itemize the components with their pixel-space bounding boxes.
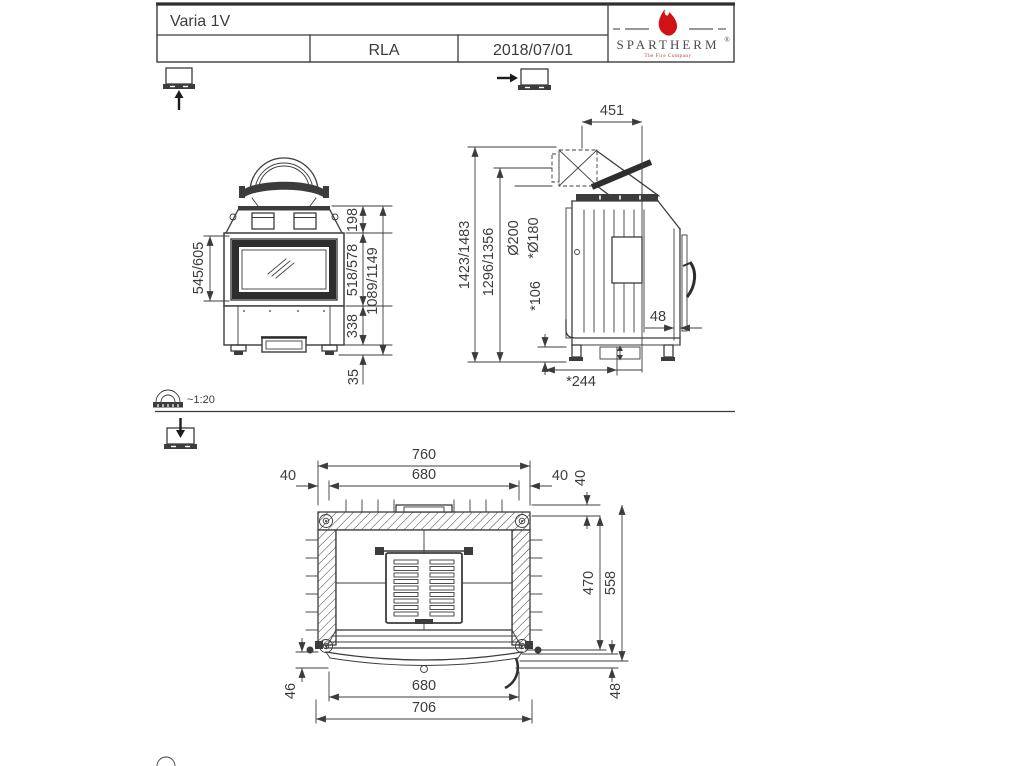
dim-front-overall-height: 1089/1149 <box>365 247 381 314</box>
bottom-partial-icon <box>157 757 175 766</box>
dim-top-front-offset-right: 48 <box>608 683 624 699</box>
insulation-wall-left <box>318 530 336 645</box>
dim-side-base-depth: *244 <box>566 374 596 390</box>
door-handle <box>687 262 695 297</box>
front-view-marker-icon <box>163 68 195 110</box>
dim-top-margin-right: 40 <box>552 468 568 484</box>
drawing-date: 2018/07/01 <box>493 42 573 59</box>
dim-side-flue-diameter: Ø200 <box>506 220 522 255</box>
side-view-marker-icon <box>497 69 551 90</box>
dim-top-margin-top: 40 <box>573 470 589 486</box>
dim-top-front-offset-left: 46 <box>283 683 299 699</box>
scale-note: ~1:20 <box>187 394 215 406</box>
dim-front-foot-height: 35 <box>346 369 362 385</box>
side-panel-plate <box>612 237 642 283</box>
model-name: Varia 1V <box>170 13 231 30</box>
insulation-wall-rear <box>318 512 530 530</box>
front-view: 545/605 198 518/578 338 35 1089/1149 <box>191 158 392 385</box>
door-handle-top-view <box>505 658 518 688</box>
dim-front-hood-height: 198 <box>345 208 361 232</box>
brand-name: SPARTHERM <box>616 37 719 52</box>
side-view: 451 1423/1483 1296/1356 Ø200 *Ø180 *106 … <box>457 103 702 390</box>
curved-door-front <box>326 652 522 660</box>
technical-drawing-sheet: Varia 1V RLA 2018/07/01 SPARTHERM ® The … <box>0 0 1024 766</box>
top-view: 760 680 40 40 40 470 558 46 <box>280 447 628 723</box>
door-glass-edge <box>682 235 687 331</box>
dim-side-overall-height: 1423/1483 <box>457 221 473 290</box>
top-view-marker-icon <box>164 418 197 449</box>
dim-top-opening-width: 680 <box>412 467 436 483</box>
dim-top-overall-width: 760 <box>412 447 436 463</box>
dim-top-body-depth: 470 <box>581 571 597 595</box>
brand-tagline: The Fire Company <box>644 53 691 59</box>
grate-grille <box>375 547 473 624</box>
flue-collar <box>243 182 325 198</box>
title-block: Varia 1V RLA 2018/07/01 SPARTHERM ® The … <box>156 4 735 62</box>
side-view-dimensions: 451 1423/1483 1296/1356 Ø200 *Ø180 *106 … <box>457 103 702 390</box>
insulation-wall-right <box>512 530 530 645</box>
hood-vent-right <box>294 213 316 229</box>
dim-top-front-width: 706 <box>412 700 436 716</box>
drawn-by: RLA <box>368 42 399 59</box>
brand-registered-mark: ® <box>724 36 730 44</box>
dim-side-flue-depth: 451 <box>600 103 624 119</box>
dim-side-flue-diameter-reduced: *Ø180 <box>526 217 542 258</box>
dim-side-flue-height: 1296/1356 <box>481 228 497 297</box>
dim-side-clearance: *106 <box>528 281 544 311</box>
dim-front-glass-height: 545/605 <box>191 242 207 294</box>
hood-vent-left <box>252 213 274 229</box>
dim-front-door-height: 518/578 <box>345 244 361 296</box>
scale-indicator: ~1:20 <box>153 390 215 408</box>
dim-top-door-width: 680 <box>412 678 436 694</box>
scale-icon <box>156 390 180 402</box>
ash-drawer <box>262 337 306 352</box>
dim-side-rear-gap: 48 <box>650 309 666 325</box>
dim-front-base-height: 338 <box>345 314 361 338</box>
dim-top-margin-left: 40 <box>280 468 296 484</box>
dim-top-overall-depth: 558 <box>603 571 619 595</box>
